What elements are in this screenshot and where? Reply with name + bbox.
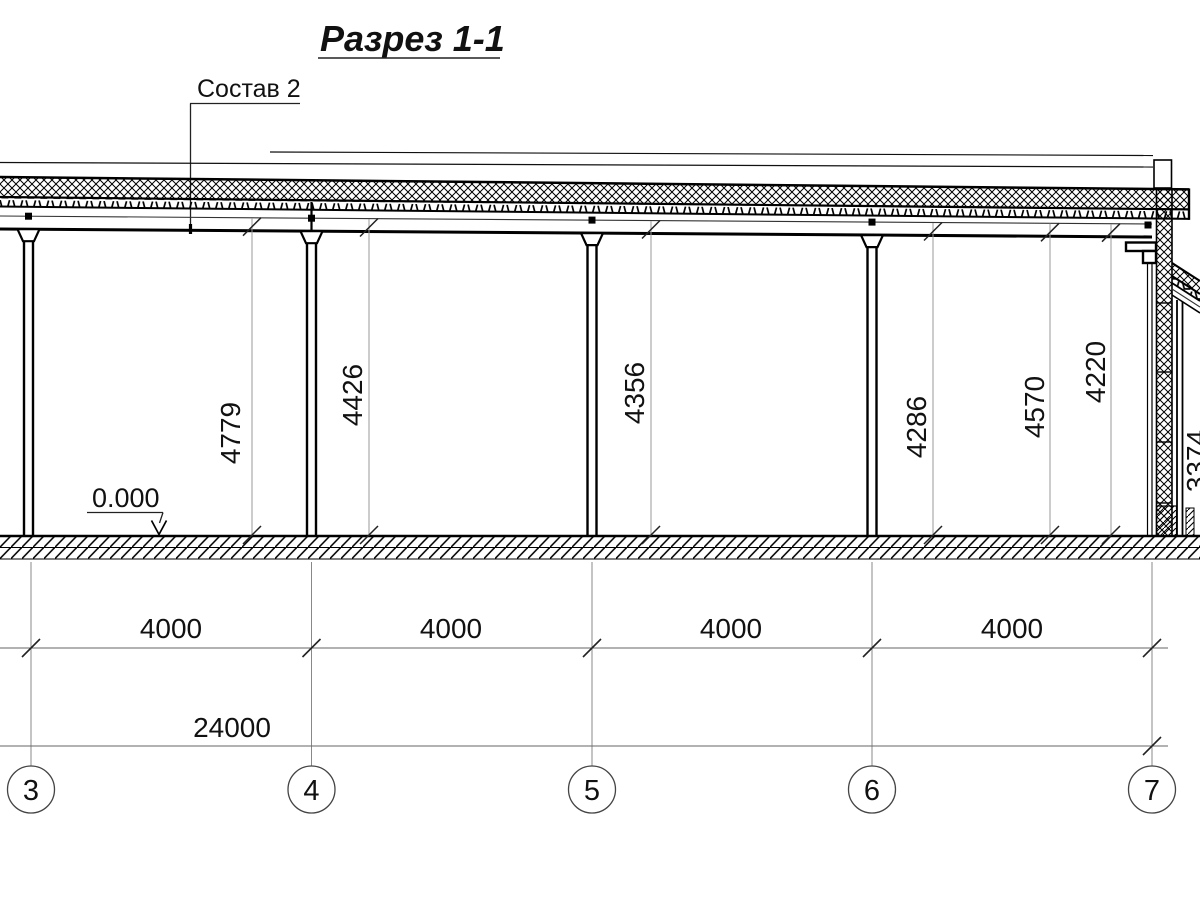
height-dimensions	[252, 218, 1111, 536]
height-dim-text: 4570	[1019, 376, 1050, 438]
beam-connection-node	[1145, 222, 1152, 229]
height-dim-text: 4356	[619, 362, 650, 424]
grid-axis-bubbles: 3 4 5 6 7	[8, 766, 1176, 813]
column-capital	[301, 231, 323, 243]
beam-seat-step	[1143, 251, 1156, 263]
bay-dimension-row: 4000 4000 4000 4000	[0, 613, 1168, 657]
roof-beam	[0, 229, 1152, 237]
height-dimension-ticks	[243, 218, 1120, 544]
axis-label: 6	[864, 775, 880, 807]
height-dim-text: 4220	[1080, 341, 1111, 403]
bay-dim-text: 4000	[140, 613, 202, 644]
axis-label: 7	[1144, 775, 1160, 807]
roof-cap-line	[270, 152, 1153, 156]
drawing-title: Разрез 1-1	[318, 18, 505, 59]
axis-label: 3	[23, 775, 39, 807]
roof-eave-line	[0, 163, 1153, 168]
height-dim-text: 4286	[901, 396, 932, 458]
level-mark-drop	[160, 513, 164, 524]
level-mark: 0.000	[87, 483, 167, 535]
axis-label: 5	[584, 775, 600, 807]
level-mark-text: 0.000	[92, 483, 160, 513]
overall-dimension-row: 24000	[0, 712, 1168, 755]
height-dim-text: 3374	[1181, 430, 1200, 492]
height-dimension-labels: 4779 4426 4356 4286 4570 4220 3374	[215, 341, 1200, 492]
annex-roof	[1172, 263, 1200, 536]
parapet	[1154, 160, 1172, 188]
beam-seat	[1126, 243, 1156, 252]
beam-connection-node	[25, 213, 32, 220]
height-dim-text: 4426	[337, 364, 368, 426]
height-dim-text: 4779	[215, 402, 246, 464]
beam-connection-node	[869, 219, 876, 226]
floor-slab	[0, 536, 1200, 559]
title-text: Разрез 1-1	[320, 18, 505, 59]
beam-connection-node	[589, 217, 596, 224]
overall-dim-text: 24000	[193, 712, 271, 743]
wall-hatch	[1157, 188, 1173, 536]
section-drawing-sheet: Разрез 1-1 Состав 2	[0, 0, 1200, 900]
bay-dim-text: 4000	[981, 613, 1043, 644]
wall-base-hatch	[1157, 506, 1177, 536]
callout-text: Состав 2	[197, 75, 301, 103]
section-drawing: Разрез 1-1 Состав 2	[0, 0, 1200, 900]
annex-base-hatch	[1186, 508, 1194, 536]
column-capital	[18, 229, 40, 241]
roof-assembly	[0, 152, 1189, 237]
bay-dim-text: 4000	[700, 613, 762, 644]
axis-label: 4	[303, 775, 319, 807]
column-capital	[581, 233, 603, 245]
column-capital	[861, 235, 883, 247]
bay-dim-text: 4000	[420, 613, 482, 644]
